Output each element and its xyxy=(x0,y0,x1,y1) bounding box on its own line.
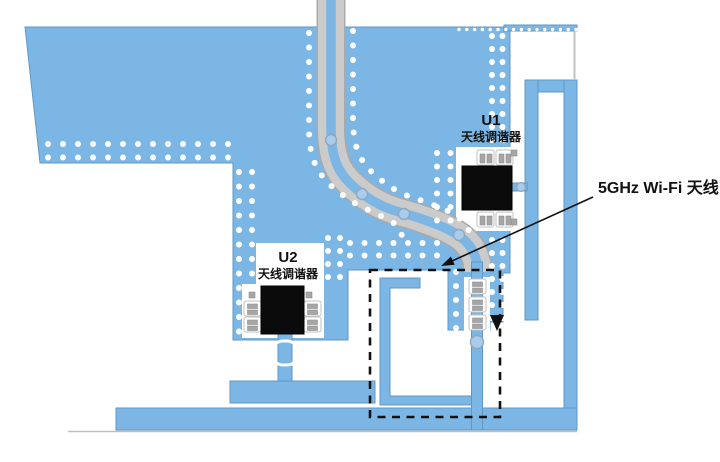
u1-ref-label: U1 xyxy=(481,112,500,129)
u2-chip xyxy=(261,286,304,334)
hairpin-right-arm xyxy=(564,80,577,412)
pcb-svg: 5GHz Wi-Fi 天线 U1 天线调谐器 U2 天线调谐器 xyxy=(0,0,720,462)
pcb-layout-diagram: 5GHz Wi-Fi 天线 U1 天线调谐器 U2 天线调谐器 xyxy=(0,0,720,462)
u2-name-label: 天线调谐器 xyxy=(258,266,319,281)
u2-ground-bar xyxy=(230,381,375,403)
hairpin-left-arm xyxy=(525,80,538,320)
u1-chip xyxy=(462,166,512,210)
antenna-callout-label: 5GHz Wi-Fi 天线 xyxy=(598,178,719,197)
bottom-ground-bar xyxy=(116,408,577,430)
u1-name-label: 天线调谐器 xyxy=(461,129,522,144)
u2-ref-label: U2 xyxy=(278,249,297,266)
stub-pad xyxy=(517,183,526,192)
